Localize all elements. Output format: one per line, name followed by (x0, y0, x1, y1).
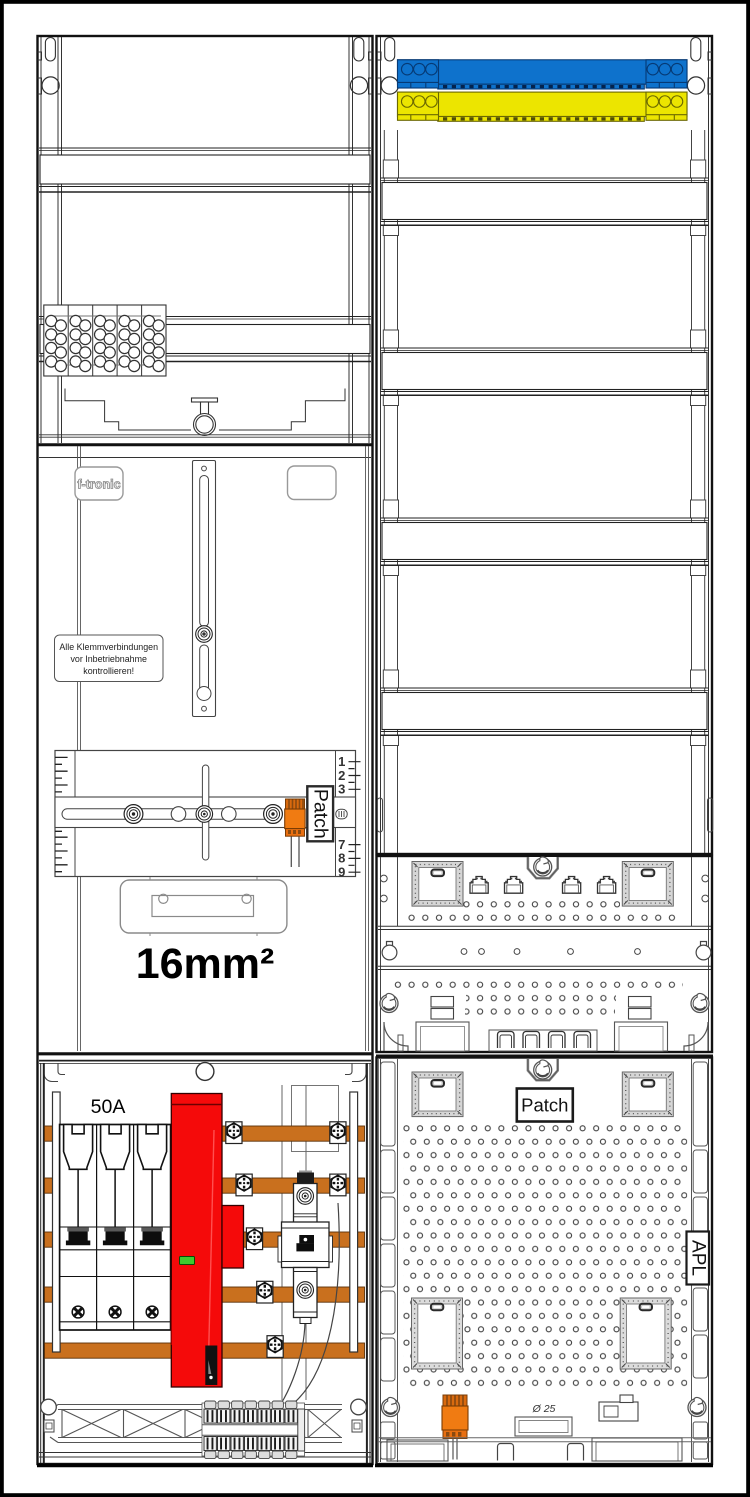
svg-text:1: 1 (338, 754, 345, 769)
svg-text:Alle Klemmverbindungen: Alle Klemmverbindungen (59, 642, 158, 652)
svg-text:APL: APL (687, 1240, 708, 1276)
svg-text:16mm²: 16mm² (136, 940, 275, 988)
svg-text:f-tronic: f-tronic (77, 478, 120, 492)
svg-text:kontrollieren!: kontrollieren! (83, 666, 134, 676)
svg-text:9: 9 (338, 865, 345, 880)
svg-text:vor Inbetriebnahme: vor Inbetriebnahme (70, 654, 147, 664)
svg-text:2: 2 (338, 768, 345, 783)
svg-text:Patch: Patch (309, 789, 331, 839)
svg-text:Ø 25: Ø 25 (532, 1403, 556, 1415)
svg-text:8: 8 (338, 851, 345, 866)
svg-text:3: 3 (338, 782, 345, 797)
svg-text:50A: 50A (91, 1096, 126, 1118)
svg-text:7: 7 (338, 837, 345, 852)
svg-text:Patch: Patch (521, 1095, 568, 1116)
